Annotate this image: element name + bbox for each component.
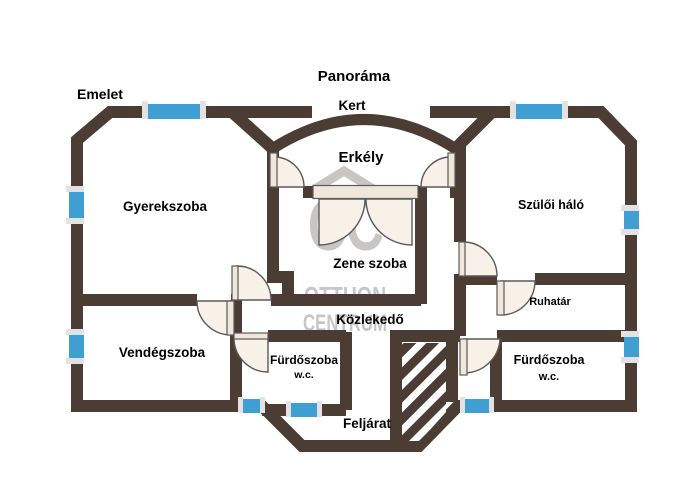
room-label-bathroom-left-wc: w.c. — [294, 370, 313, 381]
door-swing — [459, 242, 497, 276]
room-label-music-room: Zene szoba — [333, 257, 407, 271]
window-marker — [460, 397, 494, 413]
window-marker — [238, 397, 265, 413]
floor-label: Emelet — [77, 87, 123, 101]
balcony-arc-wall — [272, 120, 456, 150]
window-marker — [66, 329, 84, 364]
room-label-bathroom-left: Fürdőszoba — [270, 354, 338, 366]
room-label-master-bedroom: Szülői háló — [518, 199, 584, 212]
door-swing — [270, 153, 304, 187]
door-swing — [197, 301, 234, 335]
room-label-wardrobe: Ruhatár — [529, 297, 571, 308]
area-label-panorama: Panoráma — [318, 69, 391, 84]
area-label-garden: Kert — [338, 99, 365, 113]
window-marker — [66, 186, 84, 224]
area-label-balcony: Erkély — [338, 150, 383, 165]
floorplan: OC OTTHON CENTRUM — [0, 0, 692, 500]
door-swing — [232, 266, 271, 300]
window-marker — [286, 401, 322, 417]
window-marker — [621, 331, 639, 363]
room-label-hallway: Közlekedő — [336, 313, 404, 327]
window-marker — [621, 205, 639, 235]
area-label-upstairs-entry: Feljárat — [343, 417, 391, 431]
room-label-childrens-room: Gyerekszoba — [123, 200, 207, 214]
room-label-bathroom-right-wc: w.c. — [539, 372, 559, 383]
window-marker — [510, 101, 568, 119]
window-marker — [142, 101, 206, 119]
room-label-bathroom-right: Fürdőszoba — [514, 354, 585, 367]
door-swing — [421, 153, 455, 187]
room-label-guest-room: Vendégszoba — [119, 346, 205, 360]
